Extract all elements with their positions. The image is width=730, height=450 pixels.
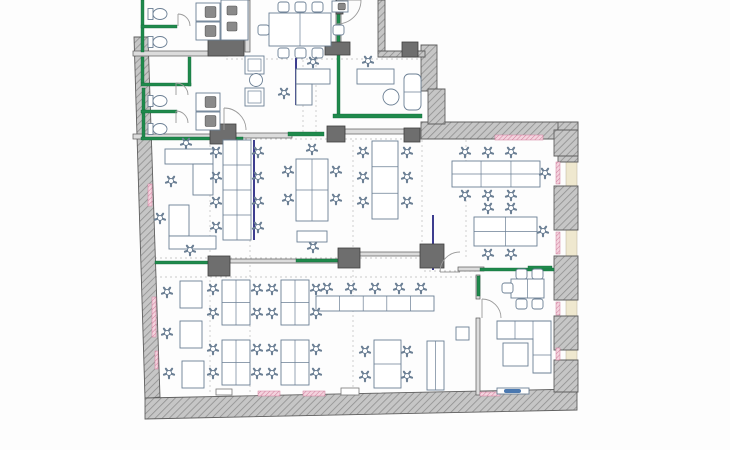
column	[420, 244, 444, 268]
sink-basin	[227, 6, 237, 15]
desk	[165, 149, 213, 164]
office-chair	[541, 229, 546, 234]
right-wall-pier	[554, 130, 578, 156]
office-chair	[325, 286, 330, 291]
office-chair	[314, 371, 319, 376]
green-wall	[296, 259, 342, 262]
column	[404, 128, 420, 142]
toilet	[153, 124, 167, 135]
toilet-tank	[148, 37, 153, 48]
office-chair	[419, 286, 424, 291]
office-chair	[463, 150, 468, 155]
office-chair	[486, 150, 491, 155]
interior-wall	[358, 252, 422, 256]
bench-desk	[316, 296, 434, 311]
office-chair	[509, 206, 514, 211]
meeting-chair	[502, 283, 513, 293]
office-chair	[543, 171, 548, 176]
meeting-chair	[312, 2, 323, 12]
side-table	[297, 231, 327, 242]
right-wall-pier	[554, 186, 578, 230]
column	[208, 256, 230, 276]
office-chair	[405, 374, 410, 379]
office-chair	[405, 150, 410, 155]
office-chair	[211, 371, 216, 376]
right-wall-pier	[554, 360, 578, 392]
right-wall-pier	[554, 316, 578, 350]
office-chair	[405, 200, 410, 205]
office-chair	[334, 197, 339, 202]
column	[402, 42, 418, 57]
paper-background	[0, 0, 730, 450]
meeting-chair	[516, 299, 527, 309]
office-chair	[211, 287, 216, 292]
meeting-chair	[312, 48, 323, 58]
desk	[193, 164, 213, 195]
office-chair	[270, 371, 275, 376]
bench-desk	[372, 141, 398, 219]
office-chair	[486, 206, 491, 211]
office-chair	[270, 347, 275, 352]
office-chair	[214, 150, 219, 155]
office-chair	[270, 287, 275, 292]
radiator	[556, 302, 560, 315]
sink-basin	[205, 97, 216, 108]
coffee-table	[503, 343, 528, 366]
exterior-wall-step-b	[428, 89, 445, 124]
office-chair	[405, 175, 410, 180]
office-chair	[334, 169, 339, 174]
office-chair	[270, 311, 275, 316]
meeting-chair	[278, 2, 289, 12]
shaft-column	[208, 40, 244, 56]
toilet	[153, 9, 167, 20]
radiator	[303, 391, 325, 396]
sink-basin	[205, 26, 216, 37]
office-chair	[463, 193, 468, 198]
office-chair	[363, 349, 368, 354]
meeting-chair	[295, 2, 306, 12]
office-chair	[255, 347, 260, 352]
side-table	[456, 327, 469, 340]
office-chair	[158, 216, 163, 221]
office-chair	[255, 287, 260, 292]
column	[338, 248, 360, 268]
meeting-chair	[532, 299, 543, 309]
office-chair	[361, 200, 366, 205]
office-chair	[184, 141, 189, 146]
office-chair	[255, 311, 260, 316]
desk	[357, 69, 394, 84]
office-chair	[366, 59, 371, 64]
sink-basin	[205, 116, 216, 127]
meeting-chair	[333, 25, 344, 35]
office-chair	[311, 60, 316, 65]
radiator	[258, 391, 280, 396]
sink-basin	[205, 7, 216, 18]
office-chair	[397, 286, 402, 291]
radiator	[148, 184, 152, 206]
desk	[180, 321, 202, 348]
interior-wall	[345, 129, 407, 134]
meeting-chair	[516, 269, 527, 279]
radiator	[155, 351, 158, 369]
toilet	[153, 96, 167, 107]
radiator	[556, 348, 560, 360]
office-chair	[486, 252, 491, 257]
office-chair	[310, 147, 315, 152]
office-chair	[211, 347, 216, 352]
office-chair	[486, 193, 491, 198]
office-chair	[509, 252, 514, 257]
green-wall	[188, 57, 191, 86]
office-chair	[361, 175, 366, 180]
green-wall	[333, 114, 422, 118]
office-chair	[311, 245, 316, 250]
green-wall	[288, 132, 324, 136]
sink-basin	[338, 3, 345, 10]
floorplan-page	[0, 0, 730, 450]
radiator	[556, 232, 560, 254]
toilet	[153, 37, 167, 48]
toilet-tank	[148, 96, 153, 107]
office-chair	[214, 225, 219, 230]
office-chair	[256, 175, 261, 180]
office-chair	[256, 225, 261, 230]
green-wall	[155, 261, 213, 264]
office-chair	[286, 169, 291, 174]
office-chair	[256, 150, 261, 155]
desk	[180, 281, 202, 308]
round-table	[250, 74, 263, 87]
media-device	[504, 389, 521, 393]
green-wall	[477, 276, 480, 296]
toilet-tank	[148, 124, 153, 135]
exterior-wall-top-stub	[378, 0, 385, 53]
meeting-chair	[278, 48, 289, 58]
office-chair	[314, 311, 319, 316]
office-floor-plan	[0, 0, 730, 450]
toilet-tank	[148, 9, 153, 20]
desk	[169, 205, 189, 236]
interior-wall	[476, 318, 480, 395]
office-chair	[255, 371, 260, 376]
office-chair	[314, 287, 319, 292]
office-chair	[405, 349, 410, 354]
column	[327, 126, 345, 142]
office-chair	[167, 371, 172, 376]
office-chair	[256, 200, 261, 205]
office-chair	[349, 286, 354, 291]
office-chair	[214, 175, 219, 180]
radiator	[152, 297, 156, 337]
office-chair	[509, 150, 514, 155]
office-chair	[214, 200, 219, 205]
green-wall	[141, 57, 144, 83]
green-wall	[141, 110, 177, 113]
interior-wall	[236, 133, 292, 138]
office-chair	[211, 311, 216, 316]
office-chair	[314, 347, 319, 352]
right-wall-pier	[554, 256, 578, 300]
office-chair	[165, 331, 170, 336]
window-box	[341, 388, 359, 395]
office-chair	[361, 150, 366, 155]
green-wall	[141, 25, 177, 28]
meeting-chair	[258, 25, 269, 35]
office-chair	[373, 286, 378, 291]
office-chair	[165, 290, 170, 295]
radiator	[495, 135, 543, 140]
desk	[296, 69, 330, 84]
window-box	[216, 389, 232, 395]
desk	[296, 84, 312, 105]
office-chair	[286, 197, 291, 202]
office-chair	[509, 193, 514, 198]
meeting-chair	[295, 48, 306, 58]
green-wall	[337, 51, 340, 117]
office-chair	[282, 91, 287, 96]
round-table	[383, 89, 399, 105]
sink-basin	[227, 22, 237, 31]
meeting-chair	[532, 269, 543, 279]
radiator	[556, 162, 560, 184]
desk	[182, 361, 204, 388]
office-chair	[169, 179, 174, 184]
office-chair	[188, 248, 193, 253]
office-chair	[363, 374, 368, 379]
glass-partition	[253, 140, 255, 240]
